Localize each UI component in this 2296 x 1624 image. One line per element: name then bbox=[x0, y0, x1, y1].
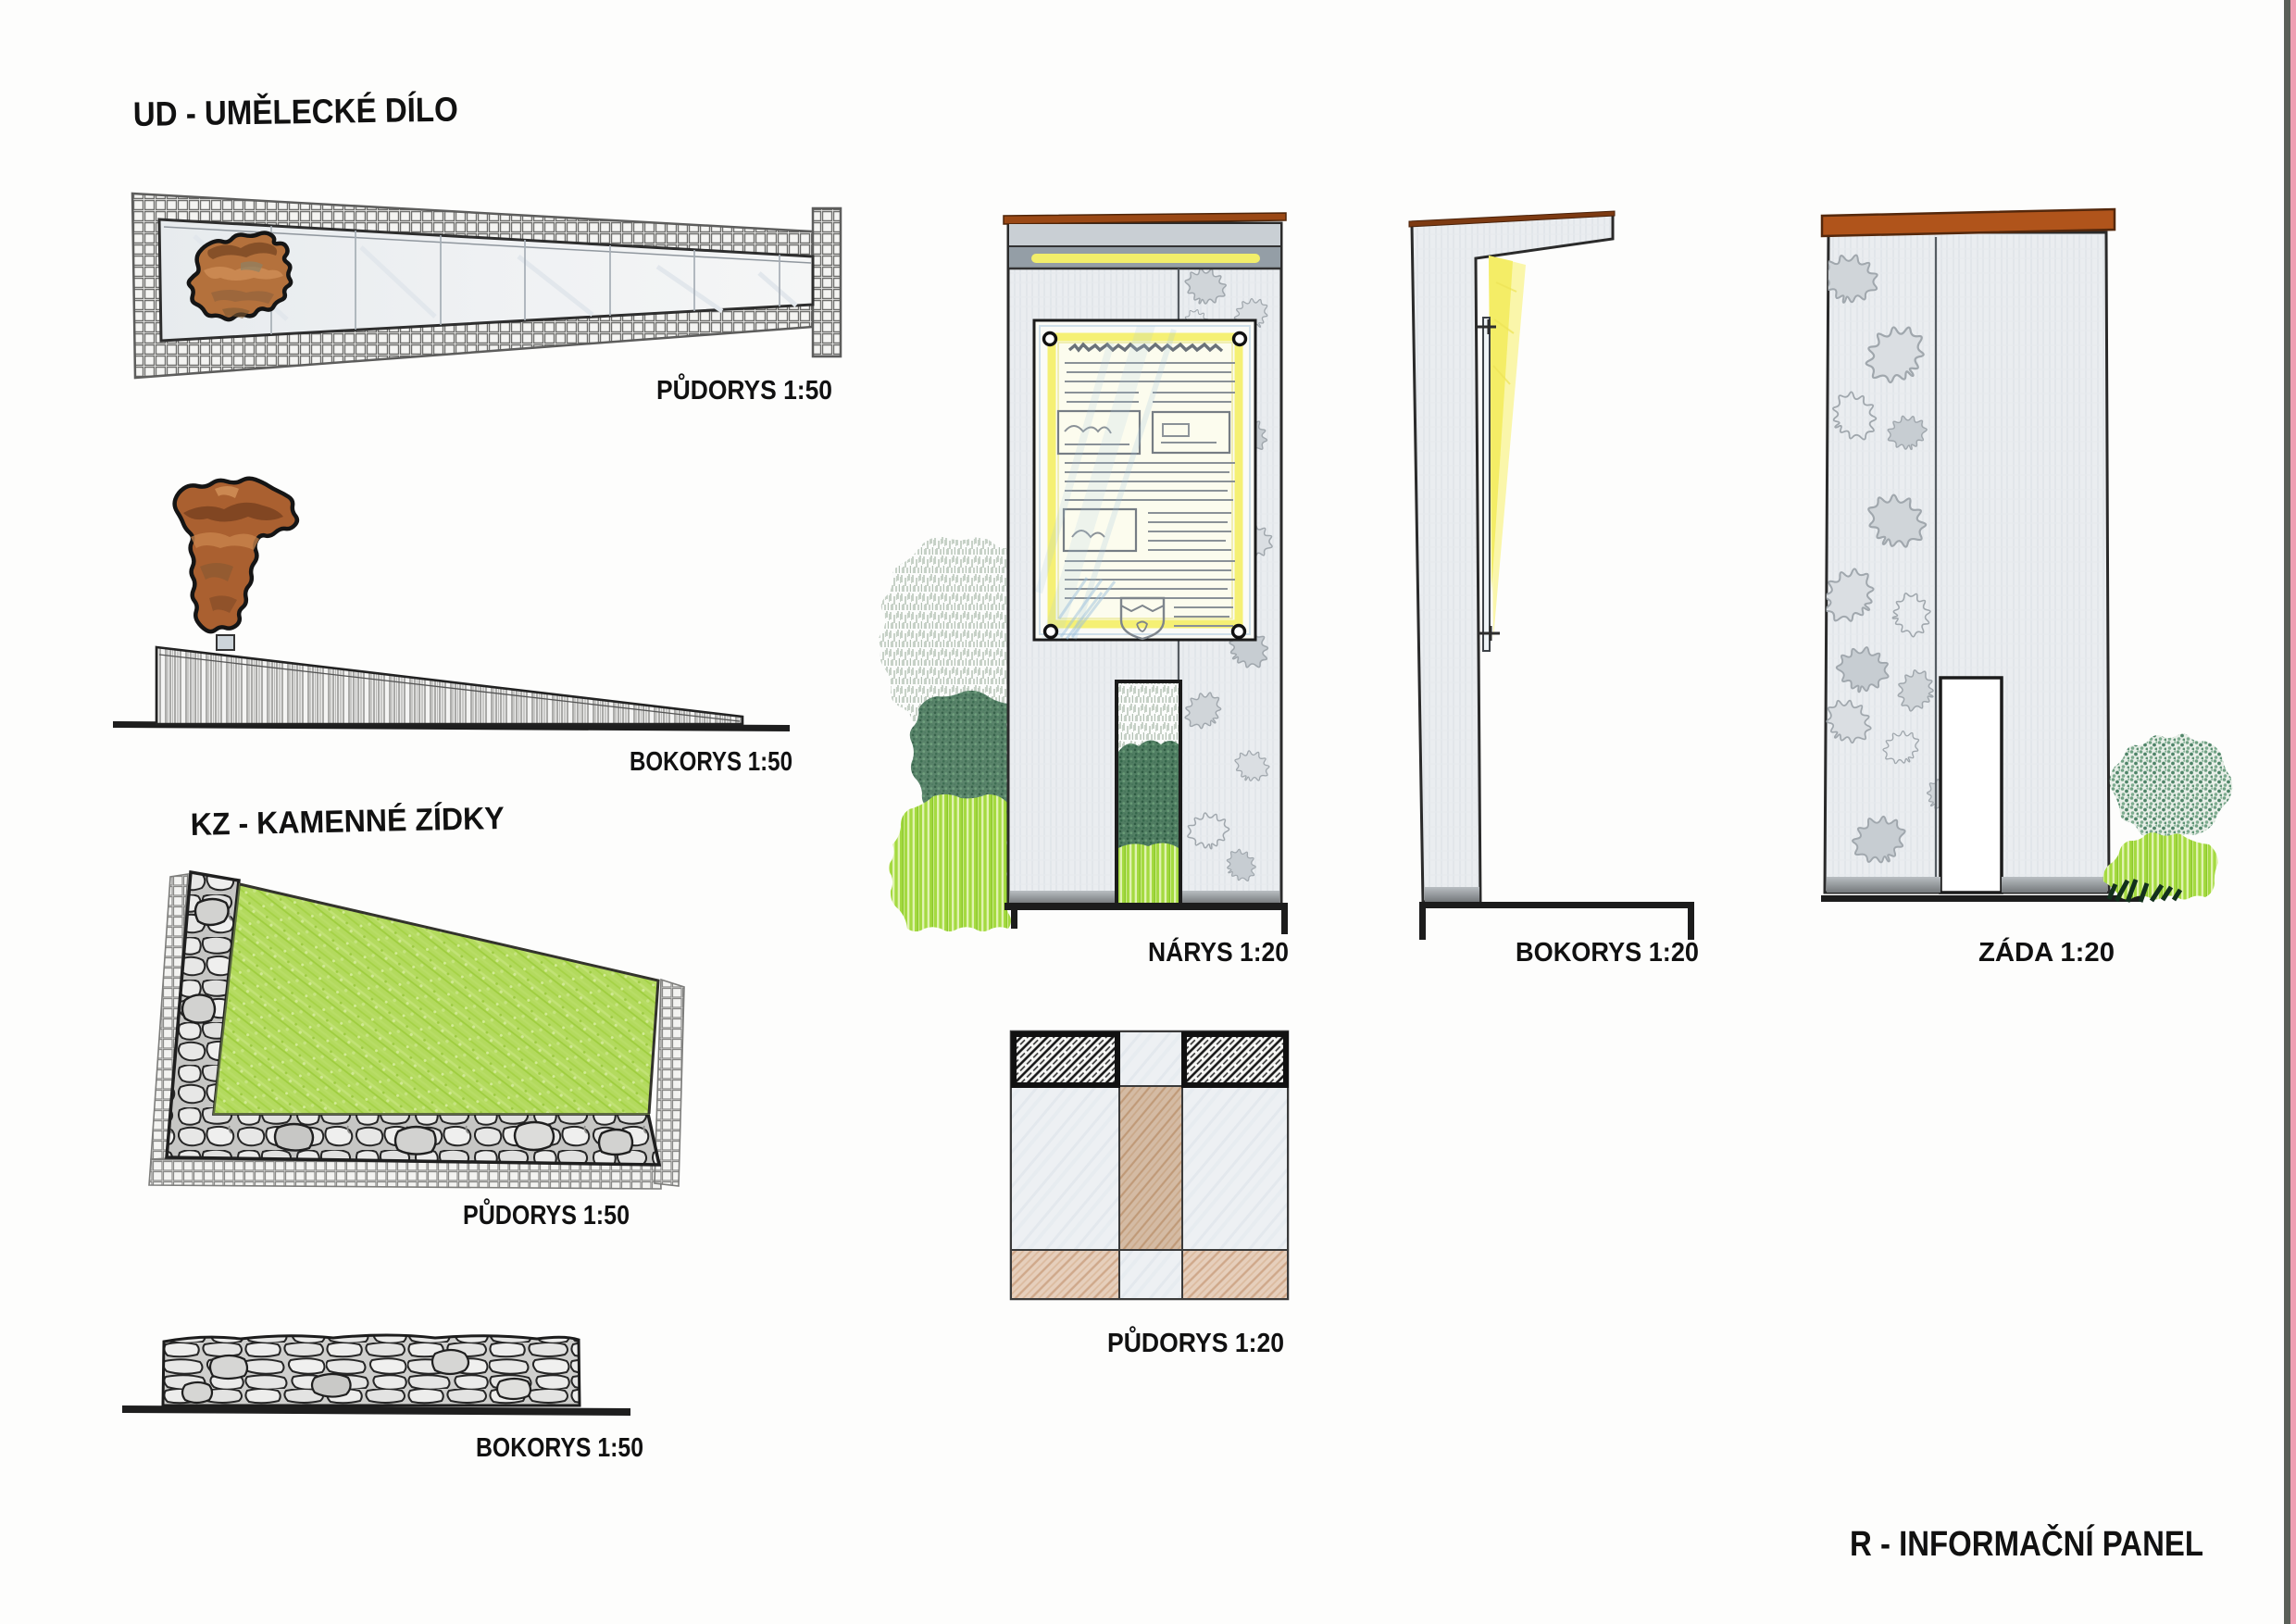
svg-text:BOKORYS 1:50: BOKORYS 1:50 bbox=[630, 747, 792, 777]
svg-text:PŮDORYS 1:50: PŮDORYS 1:50 bbox=[463, 1197, 630, 1230]
svg-text:R - INFORMAČNÍ PANEL: R - INFORMAČNÍ PANEL bbox=[1850, 1522, 2203, 1564]
svg-text:UD - UMĚLECKÉ DÍLO: UD - UMĚLECKÉ DÍLO bbox=[132, 89, 458, 133]
svg-text:KZ - KAMENNÉ ZÍDKY: KZ - KAMENNÉ ZÍDKY bbox=[190, 801, 505, 843]
svg-text:PŮDORYS 1:20: PŮDORYS 1:20 bbox=[1107, 1325, 1284, 1358]
svg-text:BOKORYS 1:50: BOKORYS 1:50 bbox=[476, 1433, 643, 1463]
svg-text:BOKORYS 1:20: BOKORYS 1:20 bbox=[1516, 938, 1699, 968]
svg-text:PŮDORYS 1:50: PŮDORYS 1:50 bbox=[656, 372, 832, 406]
svg-text:NÁRYS 1:20: NÁRYS 1:20 bbox=[1148, 936, 1289, 968]
svg-text:ZÁDA 1:20: ZÁDA 1:20 bbox=[1978, 936, 2115, 968]
